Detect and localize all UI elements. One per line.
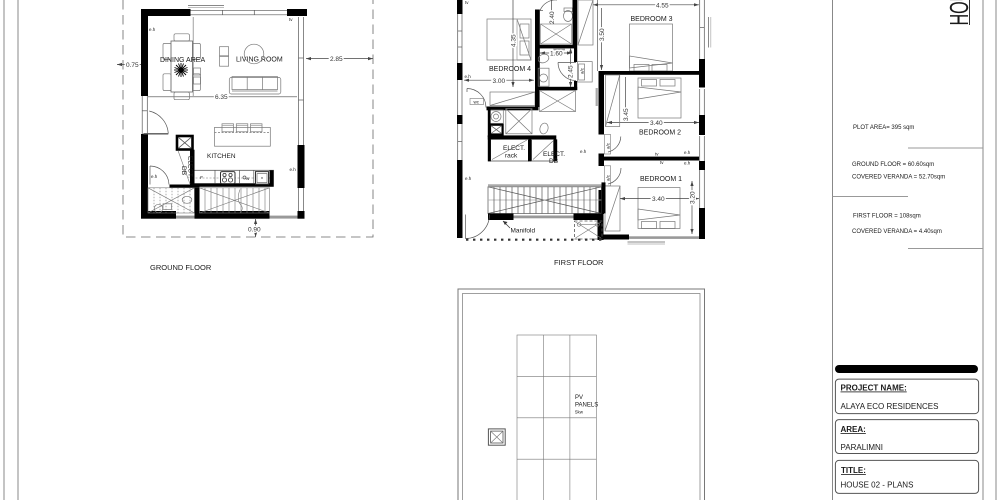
svg-text:rack: rack [505, 153, 518, 160]
svg-text:6.35: 6.35 [215, 94, 228, 101]
svg-text:BEDROOM 2: BEDROOM 2 [639, 130, 681, 137]
svg-text:3.40: 3.40 [652, 196, 665, 203]
svg-text:BEDROOM 1: BEDROOM 1 [640, 176, 682, 183]
svg-text:2.40: 2.40 [549, 11, 556, 24]
svg-text:KITCHEN: KITCHEN [207, 153, 236, 160]
svg-text:GROUND FLOOR: GROUND FLOOR [150, 263, 212, 272]
svg-text:e.h: e.h [151, 174, 158, 179]
svg-text:ALAYA ECO RESIDENCES: ALAYA ECO RESIDENCES [841, 402, 939, 411]
svg-text:PANELS: PANELS [575, 403, 598, 409]
svg-text:1.60: 1.60 [550, 51, 563, 58]
svg-text:4.55: 4.55 [656, 2, 669, 9]
svg-text:TITLE:: TITLE: [841, 466, 866, 475]
svg-text:5kw: 5kw [575, 410, 584, 415]
svg-text:ELECT.: ELECT. [543, 151, 565, 158]
svg-text:DB: DB [180, 166, 187, 175]
svg-text:0.75: 0.75 [126, 62, 139, 69]
svg-text:0.90: 0.90 [248, 227, 261, 234]
svg-text:DINING AREA: DINING AREA [160, 57, 205, 64]
svg-text:3.20: 3.20 [690, 191, 697, 204]
svg-text:2.85: 2.85 [330, 56, 343, 63]
svg-text:a/c: a/c [605, 174, 610, 181]
svg-text:a/c: a/c [605, 142, 610, 149]
svg-text:FIRST FLOOR: FIRST FLOOR [554, 258, 604, 267]
svg-text:HOUSE 02 - PLANS: HOUSE 02 - PLANS [841, 481, 914, 490]
svg-text:wc: wc [474, 99, 480, 104]
svg-text:DB: DB [549, 158, 558, 165]
svg-text:e.h: e.h [149, 27, 156, 32]
svg-text:COVERED VERANDA = 4.40sqm: COVERED VERANDA = 4.40sqm [852, 229, 942, 235]
svg-text:BEDROOM 3: BEDROOM 3 [631, 16, 673, 23]
svg-text:e.h: e.h [465, 176, 472, 181]
svg-text:PV: PV [575, 395, 583, 401]
svg-text:COVERED VERANDA = 52.70sqm: COVERED VERANDA = 52.70sqm [852, 175, 945, 181]
svg-text:e.h: e.h [684, 161, 691, 166]
svg-text:PARALIMNI: PARALIMNI [841, 443, 884, 452]
svg-text:3.40: 3.40 [650, 120, 663, 127]
svg-text:FIRST FLOOR = 108sqm: FIRST FLOOR = 108sqm [853, 214, 921, 220]
svg-text:a/c: a/c [580, 67, 585, 74]
svg-text:3.45: 3.45 [623, 108, 630, 121]
svg-text:2.45: 2.45 [568, 65, 575, 78]
svg-text:PROJECT NAME:: PROJECT NAME: [841, 384, 907, 393]
svg-text:GROUND FLOOR = 60.60sqm: GROUND FLOOR = 60.60sqm [852, 162, 934, 168]
svg-text:e.h: e.h [684, 150, 691, 155]
svg-text:AREA:: AREA: [841, 425, 866, 434]
svg-text:ELECT.: ELECT. [503, 145, 525, 152]
svg-text:e.h: e.h [465, 74, 472, 79]
svg-text:e.h: e.h [290, 167, 297, 172]
svg-text:Manifold: Manifold [511, 228, 536, 235]
svg-text:F: F [200, 175, 203, 180]
svg-text:PLOT AREA= 395 sqm: PLOT AREA= 395 sqm [853, 125, 914, 131]
svg-text:4.35: 4.35 [511, 34, 518, 47]
svg-text:3.50: 3.50 [599, 28, 606, 41]
svg-text:3.00: 3.00 [493, 78, 506, 85]
svg-text:e.h: e.h [580, 149, 587, 154]
svg-text:BEDROOM 4: BEDROOM 4 [489, 66, 531, 73]
